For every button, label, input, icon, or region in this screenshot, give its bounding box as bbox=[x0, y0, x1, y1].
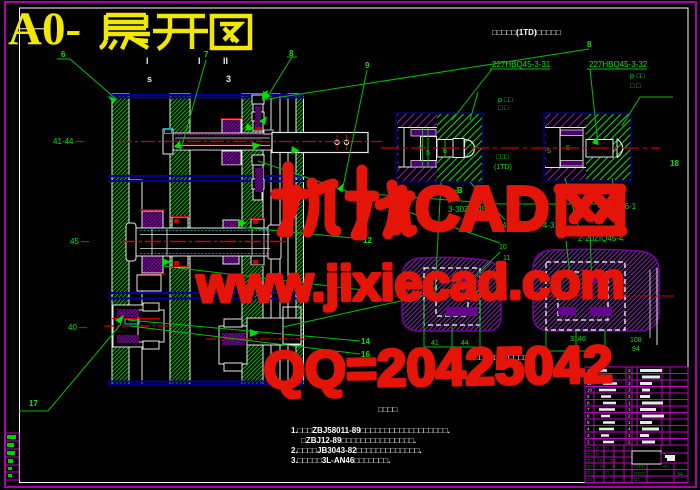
svg-text:□□: □□ bbox=[586, 464, 592, 469]
svg-text:10: 10 bbox=[499, 244, 507, 251]
svg-text:□□: □□ bbox=[586, 458, 592, 463]
svg-text:227HBQ45-3-31: 227HBQ45-3-31 bbox=[492, 60, 551, 69]
svg-text:□□: □□ bbox=[634, 477, 640, 482]
svg-text:I: I bbox=[146, 56, 149, 66]
svg-text:8: 8 bbox=[587, 40, 592, 49]
svg-text:s: s bbox=[147, 74, 152, 84]
svg-text:227HBQ45-3-32: 227HBQ45-3-32 bbox=[589, 60, 648, 69]
svg-text:6: 6 bbox=[443, 148, 447, 155]
svg-text:3: 3 bbox=[226, 74, 231, 84]
svg-text:7: 7 bbox=[204, 50, 209, 59]
svg-text:□□: □□ bbox=[586, 477, 592, 482]
svg-text:□: □ bbox=[596, 446, 599, 451]
svg-text:□□□□: □□□□ bbox=[378, 405, 397, 414]
svg-text:QQ=20425042: QQ=20425042 bbox=[263, 336, 613, 400]
svg-text:108: 108 bbox=[630, 337, 642, 344]
svg-text:p·□□: p·□□ bbox=[630, 73, 645, 80]
svg-text:3.□□□□□3L-AN46□□□□□□□.: 3.□□□□□3L-AN46□□□□□□□. bbox=[291, 456, 390, 465]
svg-text:41-44 —: 41-44 — bbox=[53, 137, 84, 146]
svg-text:□□: □□ bbox=[610, 458, 616, 463]
svg-text:I: I bbox=[198, 56, 201, 66]
svg-text:□□: □□ bbox=[598, 458, 604, 463]
svg-text:45 —: 45 — bbox=[70, 237, 89, 246]
svg-text:www.jixiecad.com: www.jixiecad.com bbox=[196, 253, 626, 313]
svg-text:□ □ □: □ □ □ bbox=[634, 471, 645, 476]
svg-text:□: □ bbox=[606, 446, 609, 451]
svg-text:9: 9 bbox=[365, 61, 370, 70]
svg-text:17: 17 bbox=[29, 399, 38, 408]
svg-text:□□: □□ bbox=[663, 464, 669, 469]
svg-text:□: □ bbox=[612, 464, 615, 469]
svg-text:1.□□□ZBJ58011-89□□□□□□□□□□□□□□: 1.□□□ZBJ58011-89□□□□□□□□□□□□□□□□□□. bbox=[291, 426, 450, 435]
svg-text:18: 18 bbox=[670, 159, 679, 168]
svg-text:□ □: □ □ bbox=[498, 105, 509, 112]
svg-text:□ZBJ12-89□□□□□□□□□□□□□□□.: □ZBJ12-89□□□□□□□□□□□□□□□. bbox=[301, 436, 416, 445]
svg-text:□□: □□ bbox=[586, 470, 592, 475]
svg-text:LL: LL bbox=[678, 471, 684, 476]
svg-text:□□□□: □□□□ bbox=[634, 464, 645, 469]
svg-text:□: □ bbox=[606, 470, 609, 475]
svg-text:(1TD): (1TD) bbox=[494, 164, 512, 171]
svg-text:94: 94 bbox=[632, 346, 640, 353]
svg-text:A0-: A0- bbox=[8, 3, 81, 55]
svg-text:2.□□□□JB3043-82□□□□□□□□□□□□□.: 2.□□□□JB3043-82□□□□□□□□□□□□□. bbox=[291, 446, 422, 455]
svg-text:□□: □□ bbox=[586, 446, 592, 451]
svg-text:40 —: 40 — bbox=[68, 323, 87, 332]
svg-text:□ □: □ □ bbox=[630, 83, 641, 90]
svg-text:□□□: □□□ bbox=[496, 154, 509, 161]
svg-text:□□□□□(1TD)□□□□□: □□□□□(1TD)□□□□□ bbox=[492, 28, 561, 37]
svg-text:6: 6 bbox=[61, 50, 66, 59]
svg-text:II: II bbox=[223, 56, 228, 66]
svg-text:CAD: CAD bbox=[415, 175, 549, 244]
svg-text:□: □ bbox=[600, 464, 603, 469]
svg-text:p·□□: p·□□ bbox=[498, 97, 513, 104]
svg-text:5: 5 bbox=[426, 150, 430, 157]
svg-text:□: □ bbox=[596, 452, 599, 457]
svg-text:□□: □□ bbox=[586, 452, 592, 457]
svg-text:5: 5 bbox=[547, 148, 551, 155]
